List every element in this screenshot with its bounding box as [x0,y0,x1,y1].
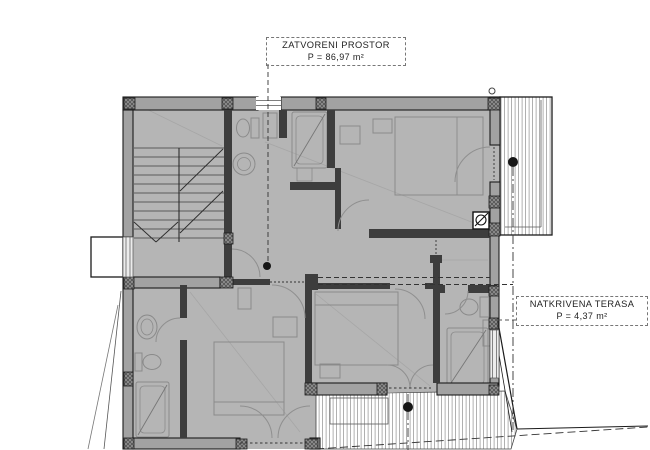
enclosed-area-title: ZATVORENI PROSTOR [267,40,405,52]
partition-bedroom-south [369,229,490,238]
wall-left-upper [123,110,133,237]
window [123,237,133,277]
site-boundary-left [104,291,121,449]
partition-stairs [224,110,232,277]
wall-junction [489,223,500,236]
wall-top-right [281,97,500,110]
wall-junction [224,233,233,244]
partition-br-vert [433,255,440,383]
vent-symbol [489,88,495,94]
partition-shower-vert [327,110,335,168]
floor-plan: ZATVORENI PROSTOR P = 86,97 m² NATKRIVEN… [0,0,650,450]
partition-closet-stub [430,255,442,263]
floor-plan-drawing [0,0,650,450]
wall-junction [489,286,499,296]
partition-br-top-a [437,285,445,293]
wall-junction [305,383,317,395]
column-dot [403,402,413,412]
column-dot [508,157,518,167]
wall-junction [305,439,318,449]
covered-terrace-title: NATKRIVENA TERASA [517,299,647,311]
wall-top-left [123,97,258,110]
wall-junction [124,98,135,109]
wall-hall-south [133,277,220,288]
partition-hall-thin [233,279,270,285]
wall-junction [220,277,233,288]
partition-shower-horiz [290,182,337,190]
wall-junction [316,98,326,109]
column-dot [263,262,271,270]
partition-bath-b [180,340,187,438]
wall-junction [377,383,387,395]
window-bay [91,237,123,277]
wall-bottom [133,438,240,449]
covered-terrace-value: P = 4,37 m² [517,311,647,323]
terrace-lower [316,391,517,449]
enclosed-area-value: P = 86,97 m² [267,52,405,64]
partition-bath-a [180,285,187,318]
label-enclosed-area: ZATVORENI PROSTOR P = 86,97 m² [266,37,406,66]
entry-door [256,97,281,110]
window [490,330,499,378]
wall-junction [124,372,133,386]
wall-junction [489,196,500,208]
wall-terrace [312,383,387,395]
wall-junction [488,98,500,110]
partition-bedroom-top-a [312,283,390,289]
wall-junction [489,385,499,395]
wall-junction [124,277,134,289]
wall-junction [489,318,498,329]
label-covered-terrace: NATKRIVENA TERASA P = 4,37 m² [516,296,648,326]
wall-junction [124,438,134,449]
partition-mid-vert [305,290,312,385]
wall-left-lower [123,277,133,449]
partition-entry-stub [279,110,287,138]
wall-junction [236,439,247,449]
site-boundary-left [88,305,118,449]
terrace-upper [500,97,552,235]
geometry-layer [88,64,648,450]
wall-junction [222,98,233,109]
